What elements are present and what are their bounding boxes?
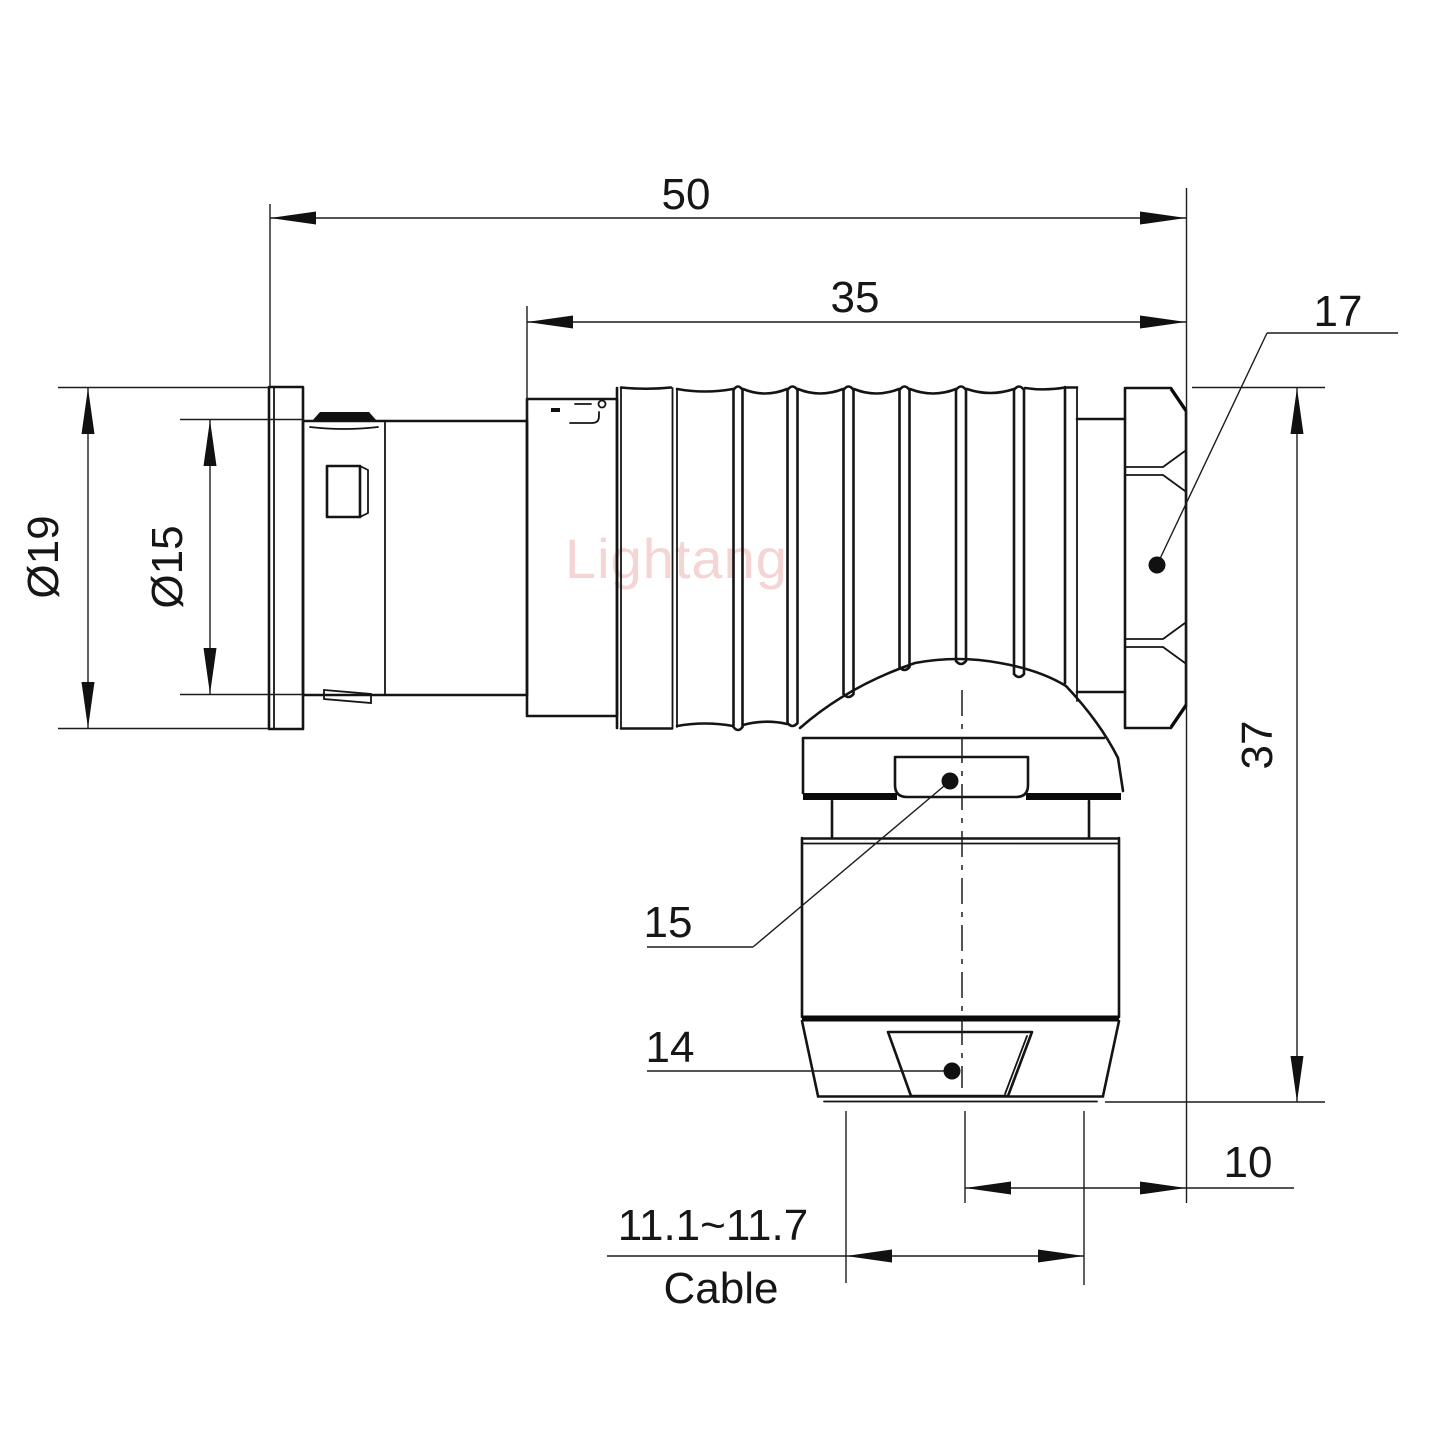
- rib: [844, 387, 854, 698]
- neck: [1077, 419, 1125, 692]
- arrowhead-up: [82, 388, 95, 434]
- dim-collet-flat-text: 14: [646, 1023, 695, 1072]
- dim-gland-flat-text: 15: [644, 898, 693, 947]
- grip-top-segment: [677, 389, 733, 392]
- arrowhead-left: [527, 316, 573, 329]
- grip-top-segment: [798, 389, 843, 394]
- arrowhead-right: [1038, 1250, 1084, 1263]
- dim-axis-to-face: 10: [965, 1111, 1294, 1203]
- arrowhead-left: [846, 1250, 892, 1263]
- engraving-hook: [570, 412, 599, 423]
- elbow-gland: [800, 659, 1123, 1102]
- keyway: [327, 466, 360, 517]
- dim-overall-length-text: 50: [662, 170, 711, 219]
- dim-overall-length: 50: [270, 170, 1187, 1203]
- rib: [956, 387, 966, 665]
- engraving-dash: [551, 408, 560, 412]
- rib: [1014, 387, 1024, 678]
- hex-nut-chamfers: [1171, 389, 1186, 727]
- dim-inner-diameter-text: Ø15: [143, 525, 192, 608]
- hex-facet-lower: [1125, 623, 1185, 663]
- arrowhead-left: [965, 1182, 1011, 1195]
- collet-window: [888, 1032, 1032, 1096]
- arrowhead-up: [1291, 388, 1304, 434]
- leader-dot: [944, 1063, 961, 1080]
- arrowhead-right: [1140, 316, 1186, 329]
- logo-engraving: [551, 401, 606, 424]
- dim-body-length-text: 35: [831, 273, 880, 322]
- bottom-wedge: [324, 690, 371, 703]
- arrowhead-right: [1140, 212, 1186, 225]
- leader-dot: [942, 773, 959, 790]
- arrowhead-right: [1140, 1182, 1186, 1195]
- front-tube: [303, 421, 527, 695]
- grip-top-segment: [743, 389, 787, 394]
- rib: [788, 387, 798, 727]
- grip-top-segment: [621, 388, 671, 389]
- grip-top-segment: [854, 389, 899, 394]
- dim-body-length: 35: [527, 273, 1186, 419]
- engraving-ring: [599, 401, 606, 408]
- grip-bottom-segment: [677, 724, 733, 727]
- arrowhead-up: [204, 420, 217, 466]
- dim-cable-range-text: 11.1~11.7: [618, 1201, 808, 1250]
- arrowhead-down: [204, 648, 217, 694]
- dim-cable-range: 11.1~11.7 Cable: [607, 1111, 1084, 1313]
- cable-label-text: Cable: [664, 1264, 779, 1313]
- dim-axis-to-face-text: 10: [1224, 1138, 1273, 1187]
- grip-top-segment: [1025, 388, 1077, 390]
- locating-tab: [312, 412, 377, 421]
- leader-dot: [1149, 557, 1166, 574]
- dim-outer-diameter-text: Ø19: [19, 515, 68, 598]
- drawing-canvas: Lightang: [0, 0, 1440, 1440]
- dim-height: 37: [1105, 388, 1325, 1103]
- dim-height-text: 37: [1233, 721, 1282, 770]
- grip-bottom-segment: [743, 722, 787, 725]
- grip-top-segment: [967, 389, 1014, 393]
- hex-facet-upper: [1125, 451, 1185, 491]
- technical-drawing: Lightang: [0, 0, 1440, 1440]
- collet-window-inner: [1005, 1036, 1027, 1094]
- arrowhead-left: [270, 212, 316, 225]
- arrowhead-down: [1291, 1056, 1304, 1102]
- rib: [900, 387, 910, 671]
- grip-top-segment: [910, 389, 956, 394]
- dim-nut-across-flats-text: 17: [1314, 287, 1363, 336]
- gland-neck-band: [832, 801, 1089, 838]
- tube-top-curve: [310, 427, 378, 429]
- dim-inner-diameter: Ø15: [143, 420, 303, 695]
- arrowhead-down: [82, 682, 95, 728]
